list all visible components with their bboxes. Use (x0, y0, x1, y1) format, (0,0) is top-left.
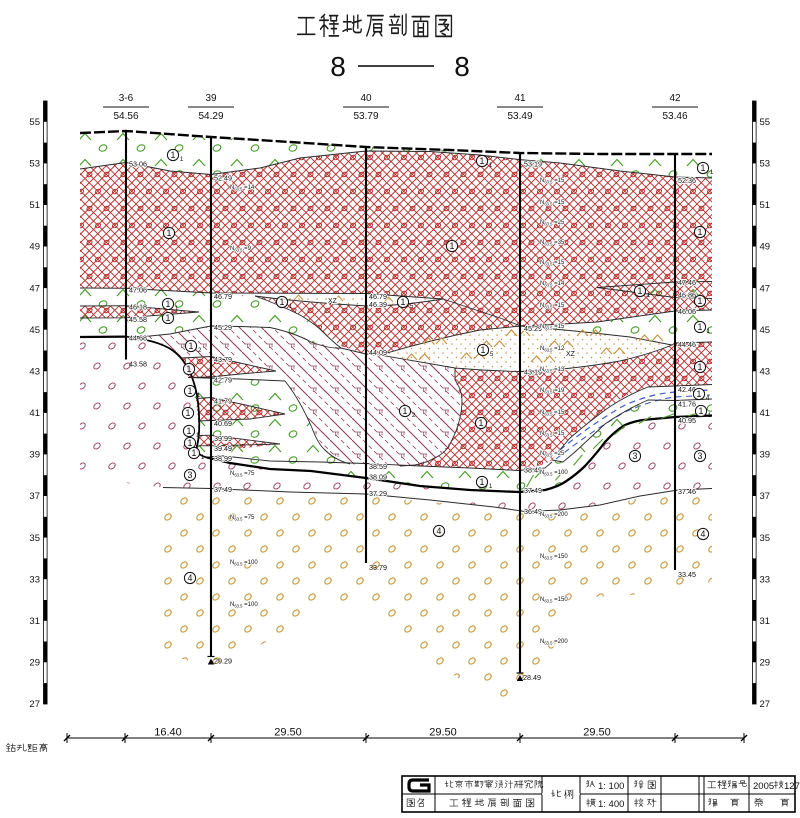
svg-text:31: 31 (760, 616, 771, 627)
svg-text:N63.5 =100: N63.5 =100 (230, 560, 258, 566)
svg-text:8: 8 (454, 51, 470, 82)
svg-text:43.58: 43.58 (129, 360, 147, 369)
svg-text:54.29: 54.29 (198, 111, 223, 122)
svg-text:1: 1 (187, 364, 192, 374)
svg-text:1: 1 (479, 418, 484, 428)
svg-text:37.29: 37.29 (369, 489, 387, 498)
svg-text:1: 1 (697, 389, 702, 399)
svg-text:53.46: 53.46 (662, 111, 687, 122)
svg-text:51: 51 (29, 200, 40, 211)
svg-text:N63.5 =19: N63.5 =19 (540, 388, 565, 394)
svg-text:8: 8 (330, 51, 346, 82)
svg-text:44.68: 44.68 (129, 334, 147, 343)
svg-text:1: 1 (201, 454, 205, 461)
svg-text:38.09: 38.09 (369, 473, 387, 482)
svg-text:N63.5 =100: N63.5 =100 (230, 602, 258, 608)
svg-text:31: 31 (29, 616, 40, 627)
svg-text:3-6: 3-6 (119, 93, 134, 104)
svg-text:41: 41 (760, 408, 771, 419)
svg-text:1: 1 (280, 297, 285, 307)
svg-text:N63.5 =35: N63.5 =35 (540, 240, 565, 246)
svg-text:1: 1 (167, 228, 172, 238)
svg-text:39: 39 (29, 450, 40, 461)
svg-text:1: 1 (647, 292, 651, 299)
svg-text:1: 1 (708, 412, 712, 419)
svg-text:2005: 2005 (753, 781, 774, 792)
svg-text:47.46: 47.46 (678, 278, 696, 287)
svg-text:1: 1 (401, 297, 406, 307)
svg-text:33: 33 (760, 574, 771, 585)
svg-text:5: 5 (410, 303, 414, 310)
svg-text:41: 41 (29, 408, 40, 419)
svg-text:27: 27 (29, 699, 40, 710)
svg-text:1: 1 (698, 296, 703, 306)
svg-text:1: 1 (196, 432, 200, 439)
svg-text:55: 55 (760, 117, 771, 128)
svg-text:35: 35 (29, 533, 40, 544)
svg-text:33.45: 33.45 (678, 570, 696, 579)
svg-text:46.79: 46.79 (214, 292, 232, 301)
svg-text:3: 3 (188, 470, 193, 480)
svg-text:40.95: 40.95 (678, 416, 696, 425)
svg-text:1: 1 (698, 322, 703, 332)
svg-text:43: 43 (29, 367, 40, 378)
svg-text:3: 3 (633, 451, 638, 461)
svg-text:N63.5 =12: N63.5 =12 (540, 346, 565, 352)
svg-text:1: 1 (188, 438, 193, 448)
svg-text:N63.5 =9: N63.5 =9 (230, 246, 252, 252)
svg-text:N63.5 =200: N63.5 =200 (540, 639, 568, 645)
svg-text:46.06: 46.06 (678, 307, 696, 316)
svg-text:45.58: 45.58 (129, 315, 147, 324)
svg-text:1: 1 (701, 163, 706, 173)
svg-text:1: 400: 1: 400 (598, 799, 624, 810)
svg-text:41.76: 41.76 (678, 400, 696, 409)
svg-text:53.79: 53.79 (353, 111, 378, 122)
svg-text:29: 29 (760, 658, 771, 669)
svg-text:N63.5 =150: N63.5 =150 (540, 597, 568, 603)
svg-text:16.40: 16.40 (154, 727, 182, 739)
svg-text:55: 55 (29, 117, 40, 128)
svg-text:37: 37 (29, 491, 40, 502)
svg-text:1: 100: 1: 100 (598, 781, 624, 792)
svg-text:1: 1 (187, 426, 192, 436)
svg-text:49: 49 (29, 242, 40, 253)
svg-text:1: 1 (489, 483, 493, 490)
svg-text:29.50: 29.50 (274, 727, 302, 739)
svg-text:1: 1 (189, 341, 194, 351)
svg-text:37: 37 (760, 491, 771, 502)
svg-text:4: 4 (188, 573, 193, 583)
svg-text:33.79: 33.79 (369, 563, 387, 572)
svg-text:1: 1 (188, 386, 193, 396)
svg-text:1: 1 (699, 406, 704, 416)
svg-text:29.29: 29.29 (214, 657, 232, 666)
svg-text:45: 45 (760, 325, 771, 336)
svg-text:53.49: 53.49 (507, 111, 532, 122)
svg-text:39.99: 39.99 (214, 434, 232, 443)
svg-text:53.06: 53.06 (129, 159, 147, 168)
svg-text:29: 29 (29, 658, 40, 669)
svg-text:46.18: 46.18 (129, 303, 147, 312)
svg-text:45.29: 45.29 (214, 323, 232, 332)
svg-text:1: 1 (710, 169, 714, 176)
svg-text:N63.5 =25: N63.5 =25 (540, 451, 565, 457)
svg-text:47.06: 47.06 (129, 285, 147, 294)
svg-text:2: 2 (198, 347, 202, 354)
svg-text:53.19: 53.19 (524, 160, 542, 169)
svg-text:N63.5 =15: N63.5 =15 (540, 260, 565, 266)
svg-text:N63.5 =15: N63.5 =15 (540, 303, 565, 309)
svg-text:43: 43 (760, 367, 771, 378)
svg-text:N63.5 =15: N63.5 =15 (540, 324, 565, 330)
svg-text:1: 1 (450, 241, 455, 251)
svg-text:N63.5 =25: N63.5 =25 (540, 220, 565, 226)
svg-text:45: 45 (29, 325, 40, 336)
svg-text:3: 3 (698, 451, 703, 461)
svg-text:42: 42 (669, 93, 681, 104)
svg-text:N63.5 =13: N63.5 =13 (540, 367, 565, 373)
svg-text:51: 51 (760, 200, 771, 211)
svg-text:1: 1 (698, 362, 703, 372)
svg-text:N63.5 =14: N63.5 =14 (540, 281, 565, 287)
svg-text:47: 47 (760, 283, 771, 294)
svg-text:1: 1 (197, 392, 201, 399)
svg-text:4: 4 (701, 529, 706, 539)
svg-text:1: 1 (480, 156, 485, 166)
svg-text:37.46: 37.46 (678, 487, 696, 496)
svg-text:46.39: 46.39 (369, 300, 387, 309)
svg-text:1: 1 (289, 303, 293, 310)
svg-text:44.09: 44.09 (369, 348, 387, 357)
svg-text:40.69: 40.69 (214, 419, 232, 428)
svg-text:N63.5 =14: N63.5 =14 (230, 185, 255, 191)
svg-text:47: 47 (29, 283, 40, 294)
svg-text:XZ: XZ (566, 351, 576, 358)
svg-text:41: 41 (514, 93, 526, 104)
svg-text:54.56: 54.56 (113, 111, 138, 122)
svg-text:N63.5 =15: N63.5 =15 (540, 410, 565, 416)
svg-text:N63.5 =15: N63.5 =15 (540, 200, 565, 206)
svg-text:1: 1 (480, 477, 485, 487)
svg-text:46.86: 46.86 (678, 290, 696, 299)
svg-text:37.49: 37.49 (214, 485, 232, 494)
svg-text:5: 5 (490, 351, 494, 358)
svg-text:27: 27 (760, 699, 771, 710)
svg-text:37.49: 37.49 (524, 486, 542, 495)
svg-text:1: 1 (698, 227, 703, 237)
svg-text:4: 4 (706, 395, 710, 402)
svg-text:N63.5 =100: N63.5 =100 (540, 470, 568, 476)
svg-text:40: 40 (360, 93, 372, 104)
svg-text:49: 49 (760, 242, 771, 253)
svg-text:39.49: 39.49 (214, 444, 232, 453)
svg-text:1: 1 (489, 162, 493, 169)
svg-text:1: 1 (481, 345, 486, 355)
svg-text:1: 1 (171, 150, 176, 160)
svg-text:53: 53 (29, 159, 40, 170)
svg-text:35: 35 (760, 533, 771, 544)
svg-text:1: 1 (192, 448, 197, 458)
svg-text:42.79: 42.79 (214, 376, 232, 385)
svg-text:44.46: 44.46 (678, 340, 696, 349)
svg-text:N63.5 =15: N63.5 =15 (540, 431, 565, 437)
svg-text:N63.5 =75: N63.5 =75 (230, 471, 255, 477)
svg-text:1: 1 (638, 286, 643, 296)
svg-text:1: 1 (166, 299, 171, 309)
svg-text:1: 1 (175, 305, 179, 312)
svg-text:127: 127 (784, 781, 800, 792)
svg-text:43.79: 43.79 (214, 355, 232, 364)
svg-text:53: 53 (760, 159, 771, 170)
svg-text:1: 1 (180, 156, 184, 163)
svg-text:1: 1 (186, 408, 191, 418)
svg-text:1: 1 (403, 406, 408, 416)
svg-text:29.50: 29.50 (429, 727, 457, 739)
svg-text:2: 2 (412, 412, 416, 419)
svg-text:39: 39 (205, 93, 217, 104)
svg-text:38.99: 38.99 (214, 454, 232, 463)
svg-text:1: 1 (707, 328, 711, 335)
svg-text:29.50: 29.50 (583, 727, 611, 739)
svg-text:33: 33 (29, 574, 40, 585)
svg-text:38.59: 38.59 (369, 462, 387, 471)
svg-text:1: 1 (166, 313, 171, 323)
svg-text:52.49: 52.49 (214, 174, 232, 183)
svg-text:N63.5 =15: N63.5 =15 (540, 178, 565, 184)
svg-text:41.79: 41.79 (214, 396, 232, 405)
svg-text:N63.5 =75: N63.5 =75 (230, 515, 255, 521)
svg-text:28.49: 28.49 (523, 673, 541, 682)
svg-text:N63.5 =150: N63.5 =150 (540, 554, 568, 560)
svg-text:XZ: XZ (328, 298, 338, 305)
svg-text:4: 4 (437, 526, 442, 536)
svg-text:N63.5 =200: N63.5 =200 (540, 512, 568, 518)
svg-text:39: 39 (760, 450, 771, 461)
svg-text:52.36: 52.36 (678, 176, 696, 185)
